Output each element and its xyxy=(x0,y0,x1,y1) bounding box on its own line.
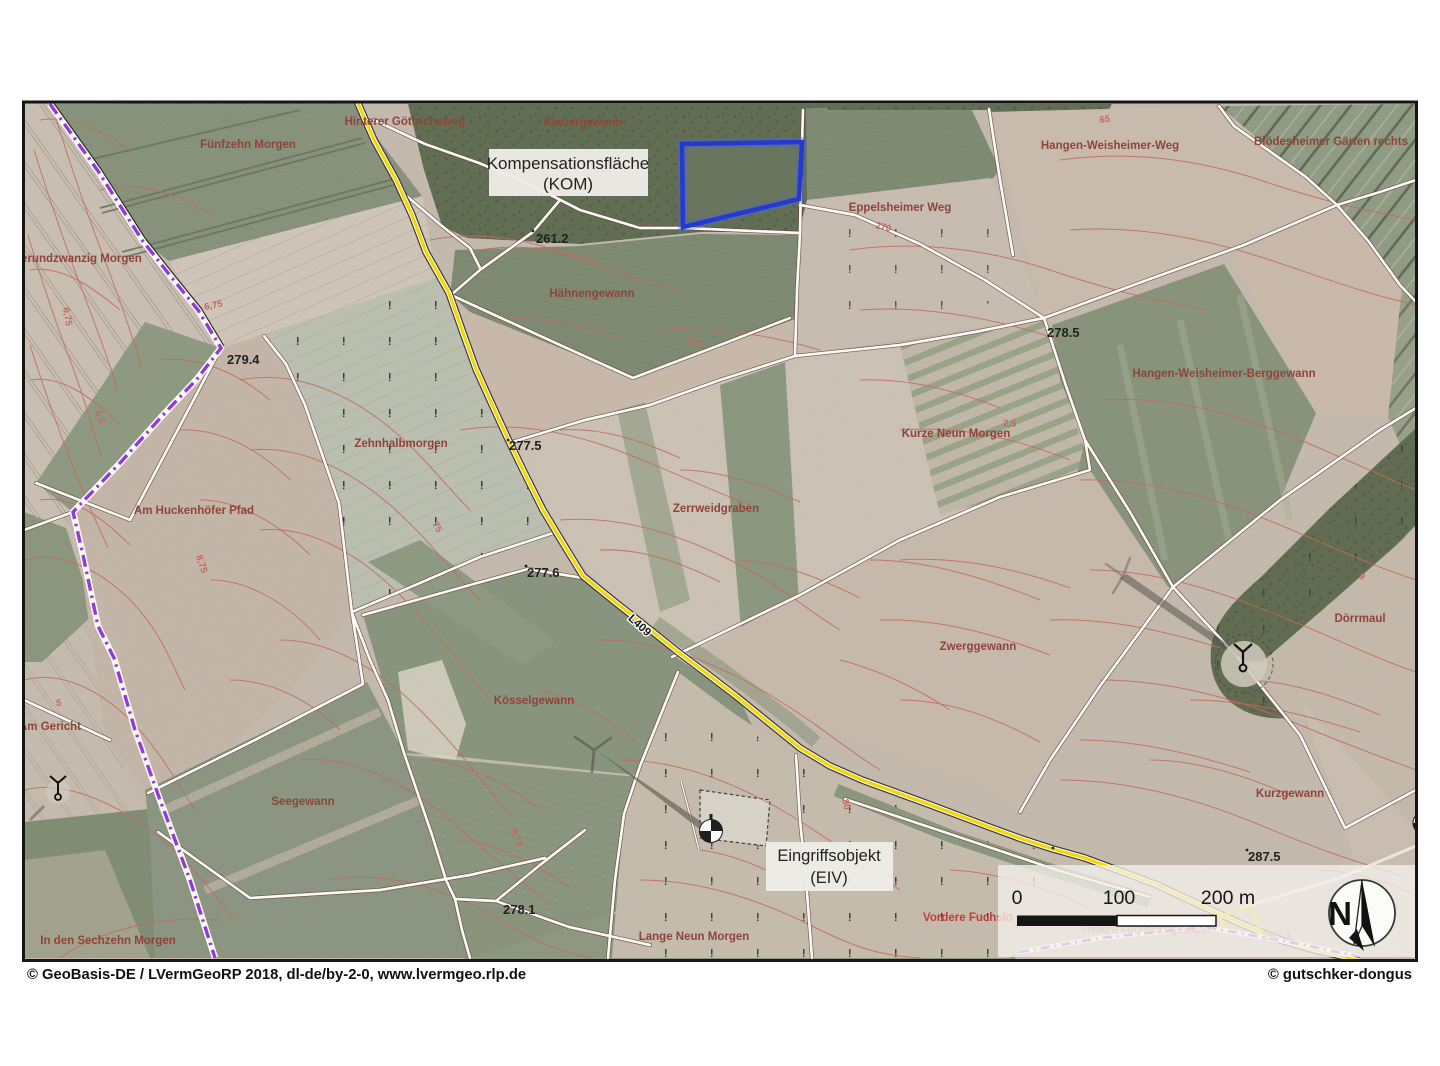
svg-text:© gutschker-dongus: © gutschker-dongus xyxy=(1268,967,1412,983)
svg-text:Eingriffsobjekt: Eingriffsobjekt xyxy=(777,847,881,865)
svg-text:(EIV): (EIV) xyxy=(810,869,848,887)
svg-text:0: 0 xyxy=(1012,887,1023,909)
svg-text:Kompensationsfläche: Kompensationsfläche xyxy=(487,154,650,173)
svg-text:200 m: 200 m xyxy=(1201,887,1255,909)
svg-text:100: 100 xyxy=(1103,887,1136,909)
svg-text:© GeoBasis-DE / LVermGeoRP 201: © GeoBasis-DE / LVermGeoRP 2018, dl-de/b… xyxy=(27,967,526,983)
svg-text:(KOM): (KOM) xyxy=(543,175,593,194)
svg-text:N: N xyxy=(1328,895,1352,932)
